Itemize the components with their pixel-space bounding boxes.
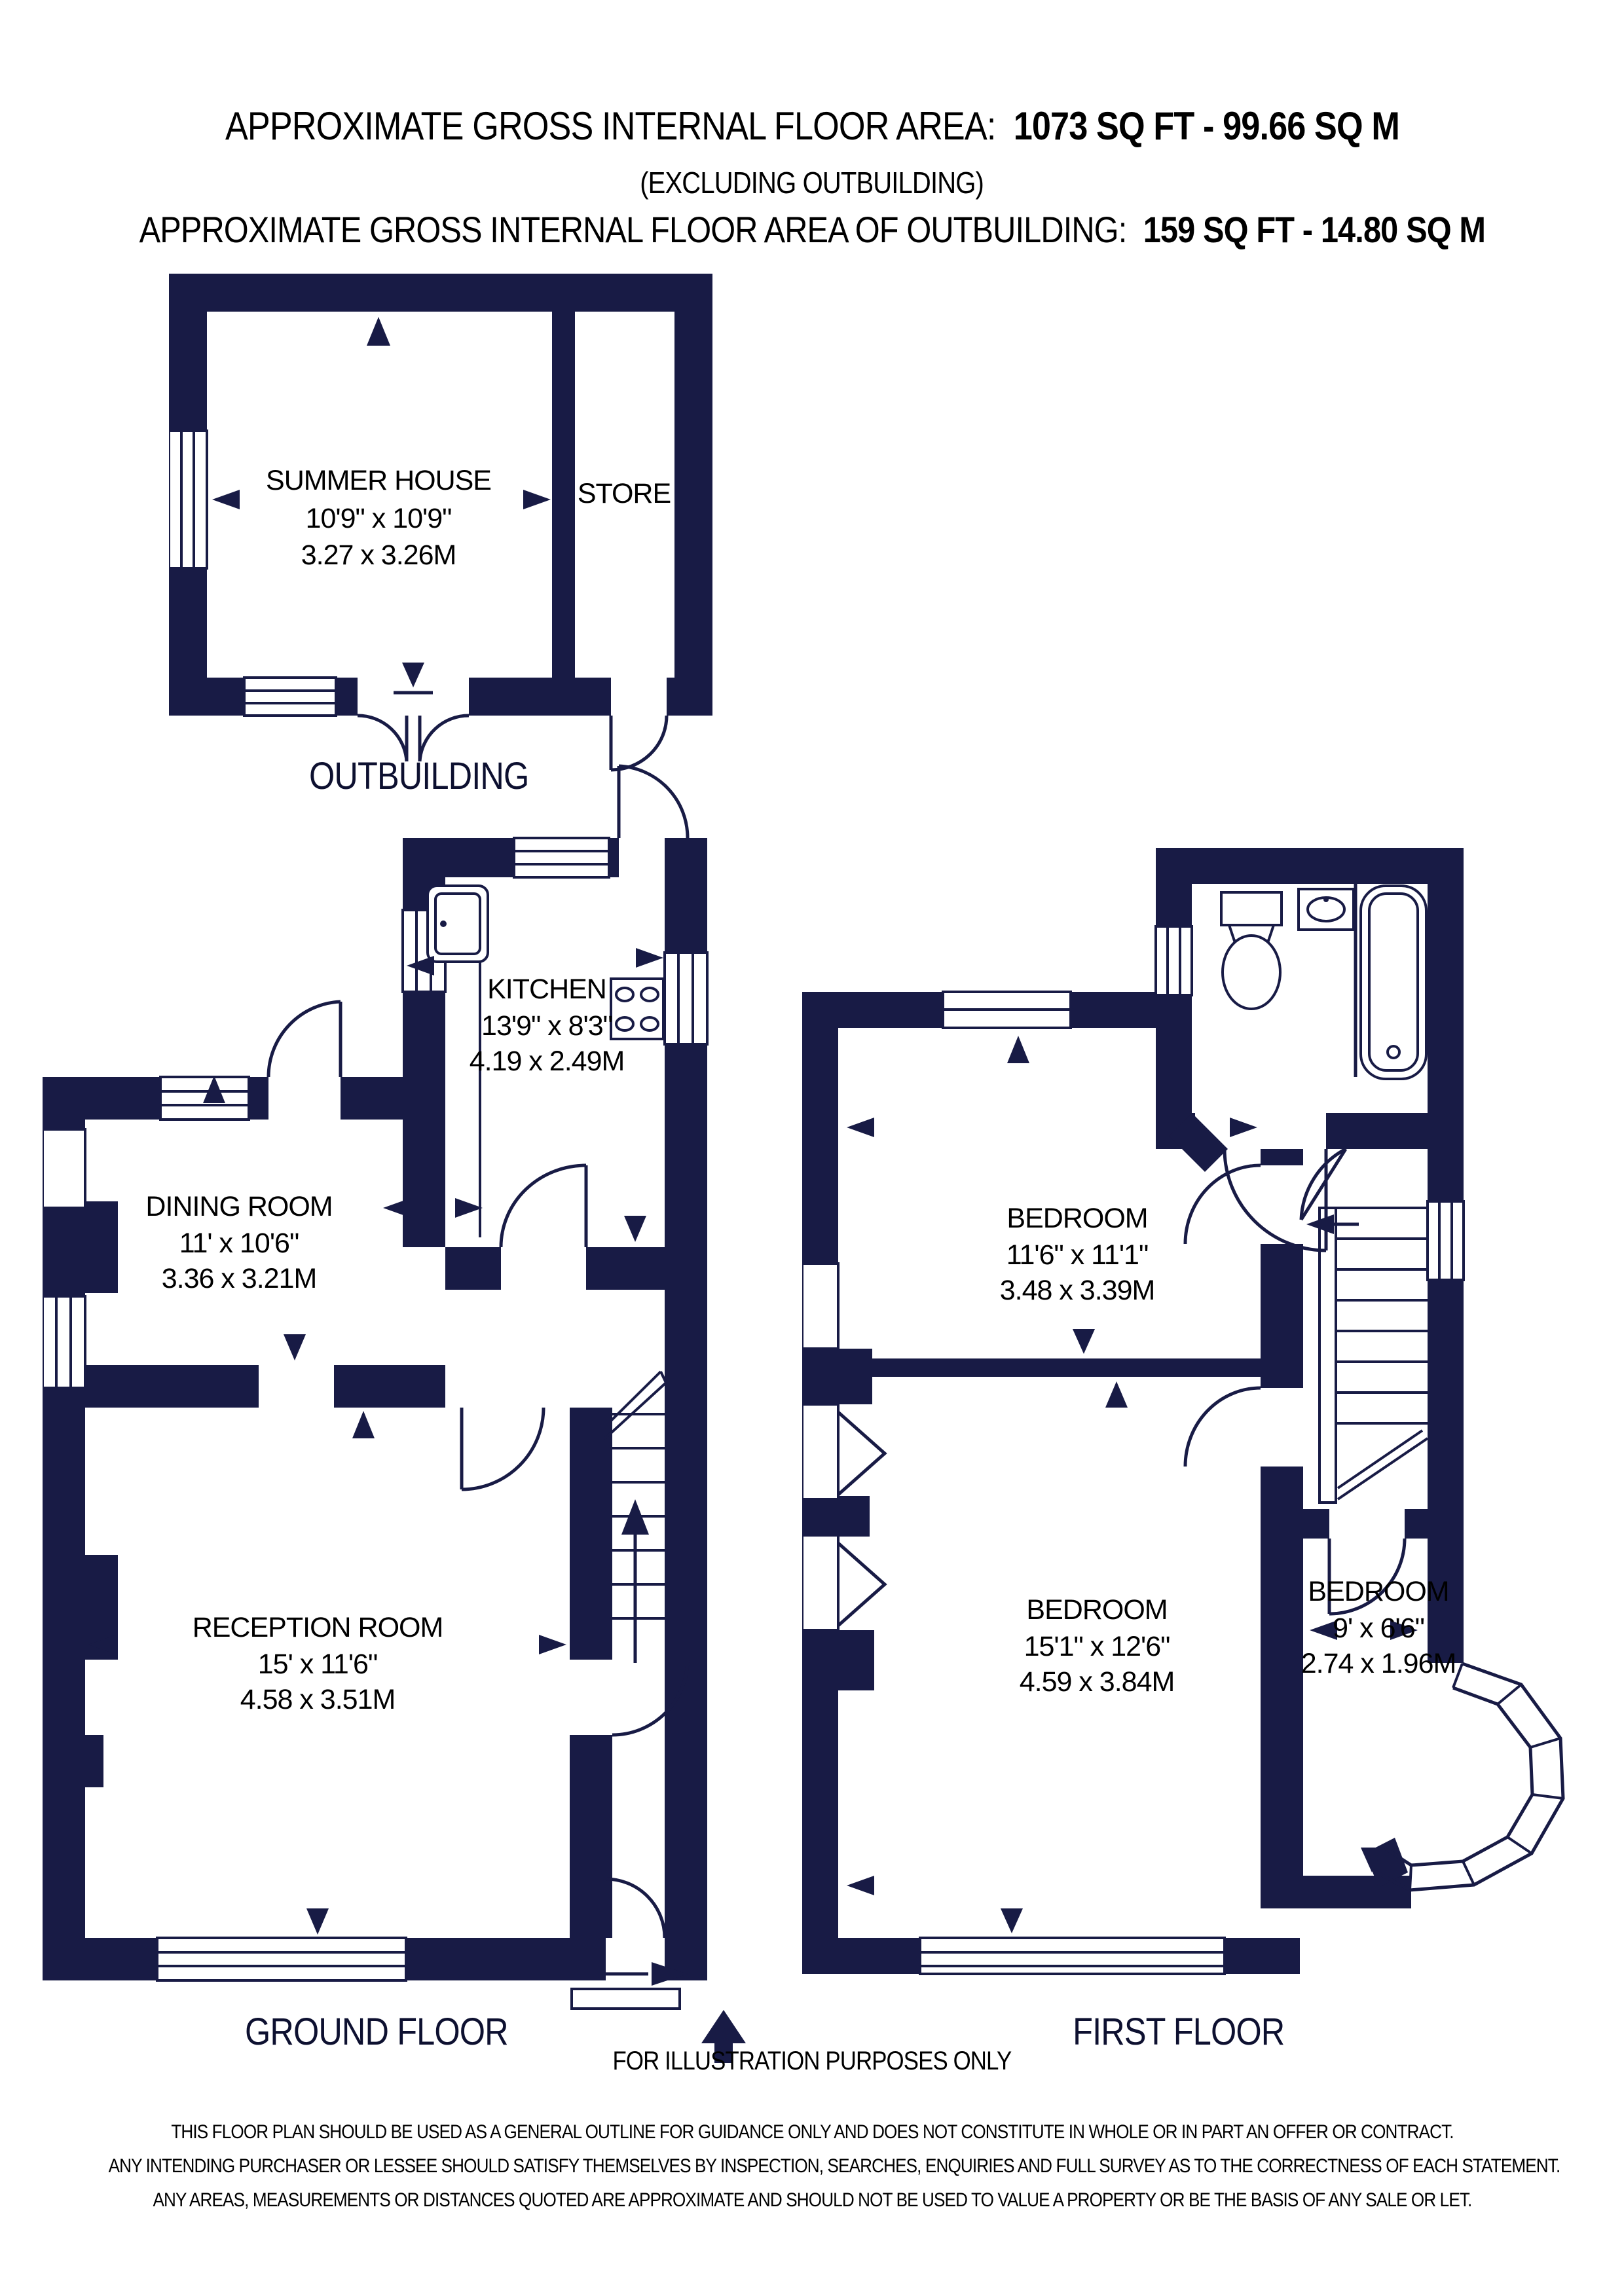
header-outbuilding-area-label: APPROXIMATE GROSS INTERNAL FLOOR AREA OF… [139, 209, 1126, 250]
staircase [1306, 1208, 1428, 1503]
svg-text:4.59 x 3.84M: 4.59 x 3.84M [1020, 1666, 1175, 1698]
reception-room-label: RECEPTION ROOM 15' x 11'6" 4.58 x 3.51M [193, 1612, 443, 1715]
first-windows [802, 926, 1464, 1974]
bedroom2-label: BEDROOM 15'1" x 12'6" 4.59 x 3.84M [1020, 1594, 1175, 1698]
header-total-area-label: APPROXIMATE GROSS INTERNAL FLOOR AREA: [225, 104, 995, 148]
disclaimer-line-1: THIS FLOOR PLAN SHOULD BE USED AS A GENE… [0, 2121, 1624, 2143]
svg-text:9' x 6'6": 9' x 6'6" [1333, 1613, 1424, 1644]
svg-text:15'1" x 12'6": 15'1" x 12'6" [1024, 1631, 1170, 1662]
svg-text:4.19 x 2.49M: 4.19 x 2.49M [470, 1046, 625, 1077]
svg-text:BEDROOM: BEDROOM [1006, 1203, 1147, 1234]
floor-plan-page: APPROXIMATE GROSS INTERNAL FLOOR AREA: 1… [0, 0, 1624, 2296]
summer-house-label: SUMMER HOUSE 10'9" x 10'9" 3.27 x 3.26M [266, 465, 491, 571]
dining-room-label: DINING ROOM 11' x 10'6" 3.36 x 3.21M [145, 1191, 332, 1294]
disclaimer-line-3: ANY AREAS, MEASUREMENTS OR DISTANCES QUO… [0, 2189, 1624, 2212]
bathroom-fixtures [1221, 886, 1426, 1079]
svg-text:BEDROOM: BEDROOM [1308, 1576, 1449, 1607]
illustration-note: FOR ILLUSTRATION PURPOSES ONLY [0, 2047, 1624, 2076]
svg-text:13'9" x 8'3": 13'9" x 8'3" [481, 1010, 612, 1042]
store-label: STORE [578, 478, 671, 509]
svg-text:3.48 x 3.39M: 3.48 x 3.39M [1000, 1275, 1155, 1306]
kitchen-label: KITCHEN 13'9" x 8'3" 4.19 x 2.49M [470, 974, 625, 1077]
first-floor-plan: BEDROOM 11'6" x 11'1" 3.48 x 3.39M BEDRO… [802, 841, 1575, 2013]
header-total-area: APPROXIMATE GROSS INTERNAL FLOOR AREA: 1… [0, 103, 1624, 149]
header-total-area-value: 1073 SQ FT - 99.66 SQ M [1013, 104, 1399, 148]
disclaimer-line-2: ANY INTENDING PURCHASER OR LESSEE SHOULD… [0, 2155, 1624, 2178]
svg-text:3.36 x 3.21M: 3.36 x 3.21M [162, 1263, 317, 1294]
outbuilding-plan: SUMMER HOUSE 10'9" x 10'9" 3.27 x 3.26M … [169, 274, 712, 797]
bedroom1-label: BEDROOM 11'6" x 11'1" 3.48 x 3.39M [1000, 1203, 1155, 1306]
svg-text:RECEPTION ROOM: RECEPTION ROOM [193, 1612, 443, 1643]
svg-text:SUMMER HOUSE: SUMMER HOUSE [266, 465, 491, 496]
svg-text:BEDROOM: BEDROOM [1026, 1594, 1167, 1626]
header-outbuilding-area: APPROXIMATE GROSS INTERNAL FLOOR AREA OF… [0, 208, 1624, 251]
ground-floor-plan: KITCHEN 13'9" x 8'3" 4.19 x 2.49M DINING… [43, 750, 789, 2079]
header-outbuilding-area-value: 159 SQ FT - 14.80 SQ M [1143, 209, 1485, 250]
svg-text:DINING ROOM: DINING ROOM [145, 1191, 332, 1222]
svg-text:15' x 11'6": 15' x 11'6" [258, 1649, 377, 1680]
header-excluding-note: (EXCLUDING OUTBUILDING) [0, 165, 1624, 200]
svg-text:2.74 x 1.96M: 2.74 x 1.96M [1301, 1648, 1456, 1679]
svg-text:11' x 10'6": 11' x 10'6" [179, 1228, 299, 1259]
svg-text:3.27 x 3.26M: 3.27 x 3.26M [301, 539, 456, 571]
svg-text:11'6" x 11'1": 11'6" x 11'1" [1006, 1239, 1148, 1271]
ground-walls [43, 838, 707, 1980]
svg-text:4.58 x 3.51M: 4.58 x 3.51M [240, 1684, 396, 1715]
svg-text:KITCHEN: KITCHEN [487, 974, 606, 1005]
svg-text:10'9" x 10'9": 10'9" x 10'9" [306, 503, 452, 534]
